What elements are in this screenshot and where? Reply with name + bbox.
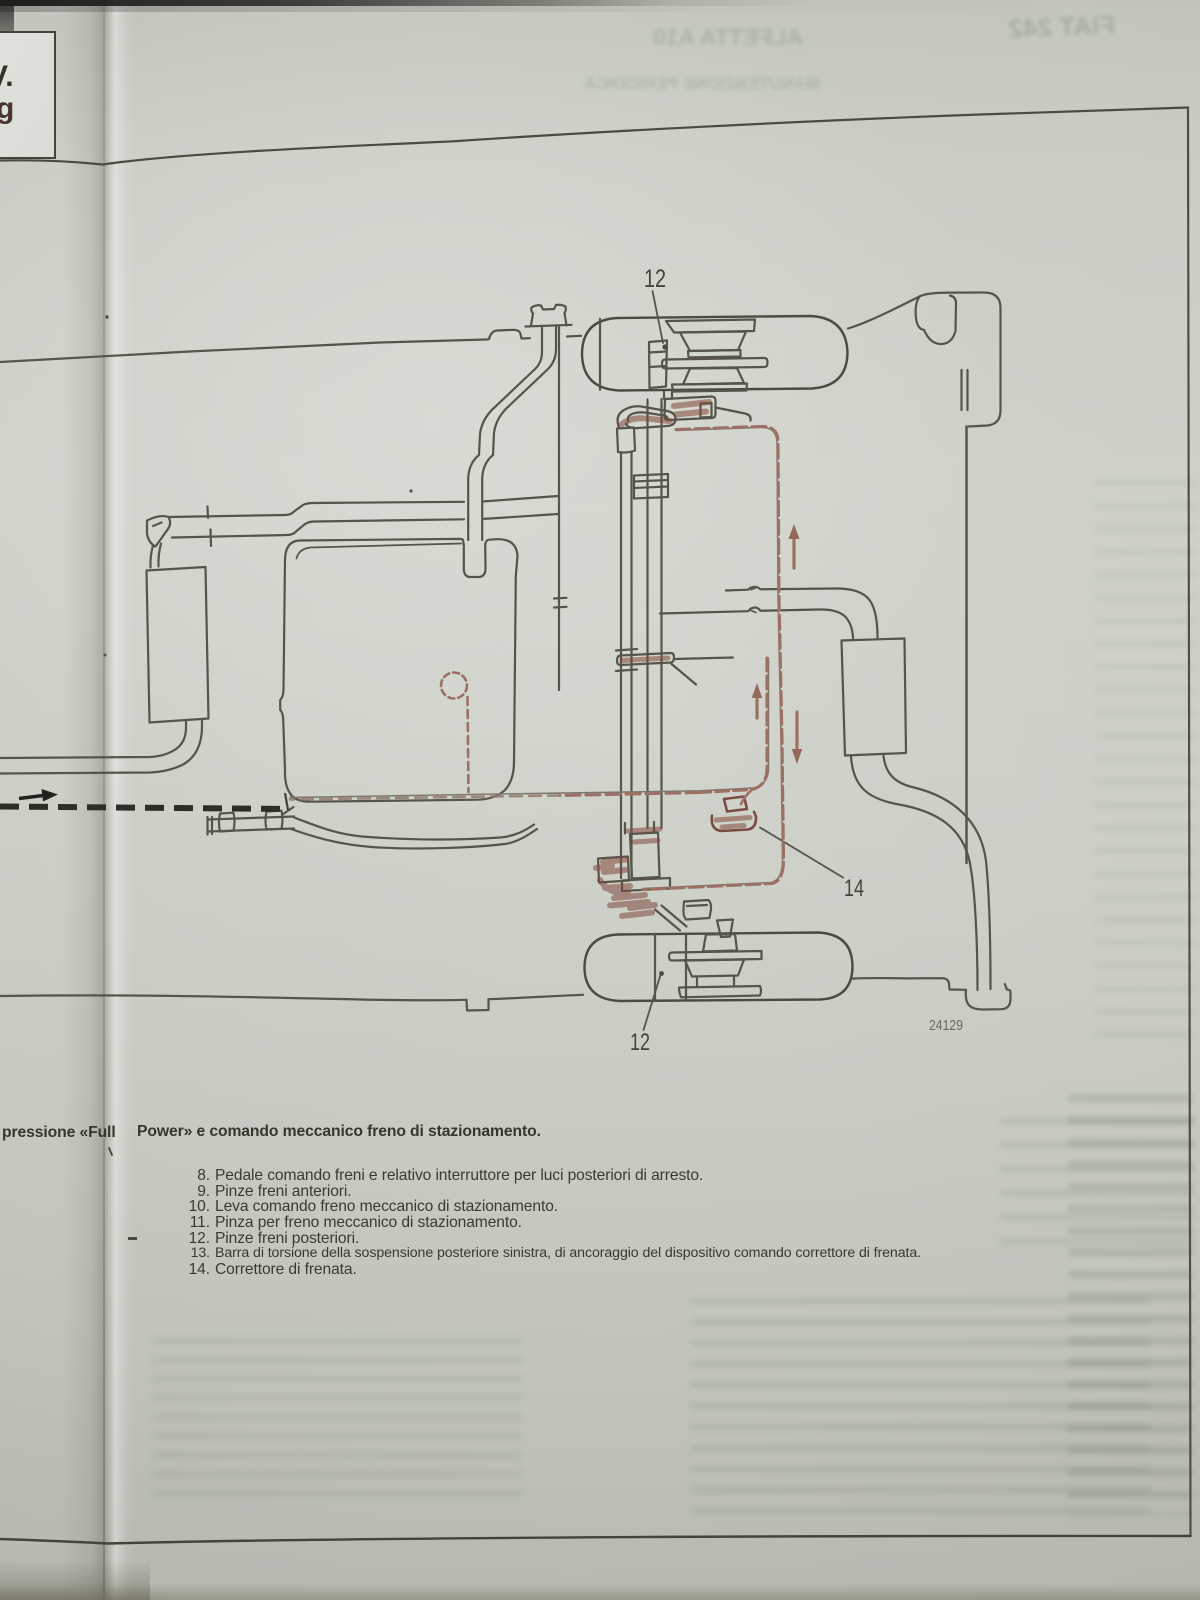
svg-text:12: 12 [644, 265, 666, 293]
svg-text:12: 12 [630, 1029, 650, 1056]
svg-text:24129: 24129 [929, 1018, 963, 1034]
svg-text:14: 14 [844, 875, 864, 902]
